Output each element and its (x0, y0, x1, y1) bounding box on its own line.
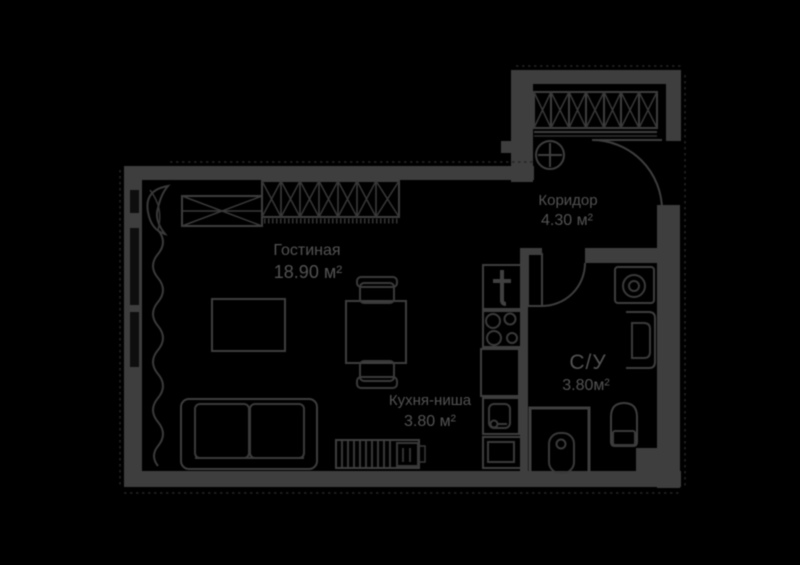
svg-text:Гостиная: Гостиная (273, 242, 340, 259)
svg-text:Кухня-ниша: Кухня-ниша (389, 392, 472, 409)
svg-text:4.30 м²: 4.30 м² (541, 212, 594, 229)
svg-text:С/У: С/У (569, 351, 606, 374)
svg-text:3.80м²: 3.80м² (562, 377, 610, 394)
svg-text:Коридор: Коридор (538, 192, 597, 209)
svg-text:3.80 м²: 3.80 м² (404, 413, 457, 430)
svg-text:18.90 м²: 18.90 м² (274, 262, 342, 282)
